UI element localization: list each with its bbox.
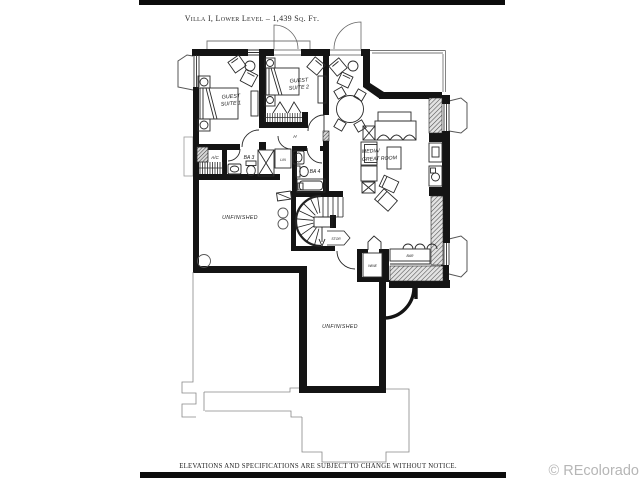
svg-text:UNFINISHED: UNFINISHED	[322, 324, 358, 330]
svg-text:© REcolorado: © REcolorado	[549, 463, 639, 479]
svg-text:WINE: WINE	[368, 264, 378, 268]
svg-text:BAR: BAR	[407, 254, 415, 258]
svg-text:MEDIA/: MEDIA/	[362, 148, 381, 155]
svg-text:Villa I, Lower Level – 1,439 S: Villa I, Lower Level – 1,439 Sq. Ft.	[185, 14, 320, 23]
svg-text:UNFINISHED: UNFINISHED	[222, 215, 258, 221]
svg-text:BA 3: BA 3	[244, 155, 255, 161]
svg-text:A/C: A/C	[210, 155, 219, 160]
svg-text:ELEVATIONS AND SPECIFICATIONS: ELEVATIONS AND SPECIFICATIONS ARE SUBJEC…	[179, 463, 457, 470]
svg-text:BA 4: BA 4	[310, 169, 321, 175]
svg-text:LIN: LIN	[280, 158, 286, 162]
svg-text:STOR: STOR	[331, 237, 341, 241]
